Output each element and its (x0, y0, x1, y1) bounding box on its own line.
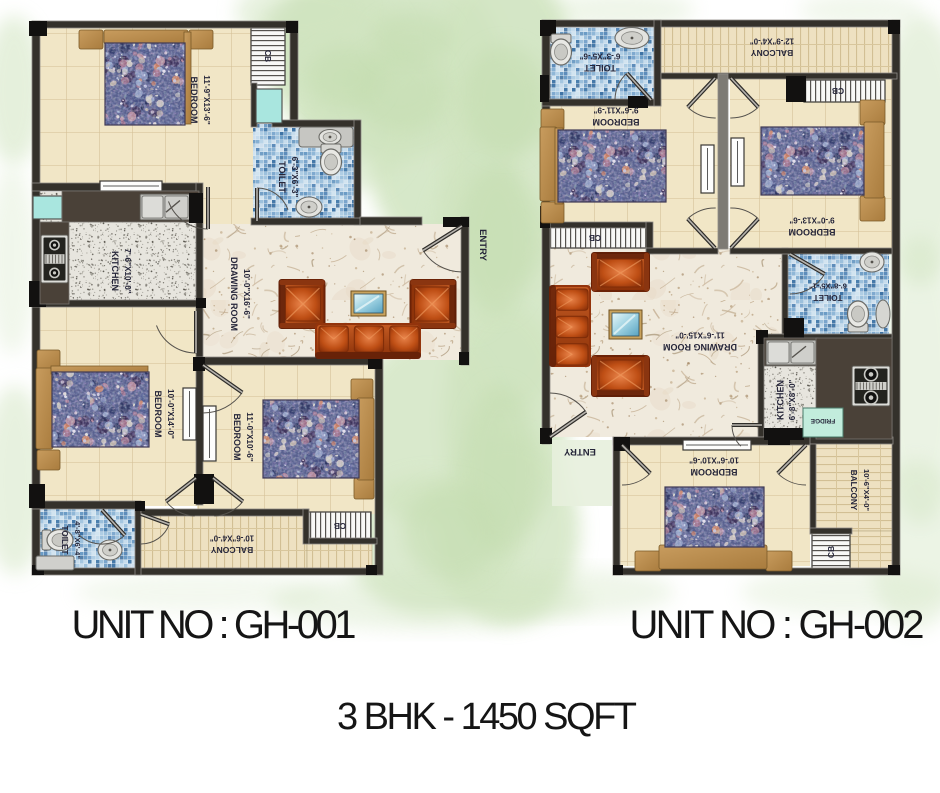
svg-text:BALCONY: BALCONY (750, 48, 793, 58)
svg-text:BEDROOM: BEDROOM (789, 227, 836, 237)
svg-text:CB: CB (832, 86, 844, 96)
svg-text:11'-9"X13'-6": 11'-9"X13'-6" (202, 75, 211, 125)
svg-text:BEDROOM: BEDROOM (189, 77, 199, 124)
svg-text:UNIT NO : GH-001: UNIT NO : GH-001 (72, 603, 357, 647)
svg-text:7'-6"X10'-0": 7'-6"X10'-0" (123, 248, 132, 293)
svg-text:3 BHK - 1450 SQFT: 3 BHK - 1450 SQFT (337, 696, 637, 738)
svg-text:10'-6"X4'-0": 10'-6"X4'-0" (862, 469, 871, 511)
svg-text:TOILET: TOILET (814, 293, 843, 302)
svg-text:DRAWING ROOM: DRAWING ROOM (229, 257, 239, 331)
svg-text:ENTRY: ENTRY (563, 446, 596, 457)
svg-text:FRIDGE: FRIDGE (810, 417, 835, 424)
svg-text:4'-8"X6'-4": 4'-8"X6'-4" (73, 521, 82, 559)
svg-text:9'-6"X11'-9": 9'-6"X11'-9" (593, 105, 638, 114)
svg-text:BEDROOM: BEDROOM (593, 117, 640, 127)
svg-text:6'-8"X8'-0": 6'-8"X8'-0" (788, 379, 797, 420)
svg-text:CB: CB (263, 50, 273, 62)
svg-text:6'-3"X5'-6": 6'-3"X5'-6" (579, 51, 620, 60)
svg-text:UNIT NO : GH-002: UNIT NO : GH-002 (630, 603, 925, 647)
svg-text:BALCONY: BALCONY (210, 545, 253, 555)
svg-text:DRAWING ROOM: DRAWING ROOM (663, 342, 737, 352)
svg-text:BEDROOM: BEDROOM (232, 414, 242, 461)
svg-text:10'-6"X10'-6": 10'-6"X10'-6" (689, 455, 739, 464)
svg-text:6'-3"X6'-3": 6'-3"X6'-3" (290, 157, 299, 198)
svg-text:KITCHEN: KITCHEN (775, 380, 785, 420)
svg-text:TOILET: TOILET (60, 526, 69, 555)
svg-text:BALCONY: BALCONY (849, 470, 858, 511)
svg-text:BEDROOM: BEDROOM (691, 467, 738, 477)
svg-text:TOILET: TOILET (584, 63, 616, 73)
svg-text:CB: CB (826, 546, 836, 558)
svg-text:10'-0"X14'-0": 10'-0"X14'-0" (166, 389, 175, 439)
svg-text:KITCHEN: KITCHEN (110, 251, 120, 291)
svg-text:CB: CB (589, 233, 601, 243)
svg-text:9'-0"X13'-6": 9'-0"X13'-6" (789, 215, 834, 224)
svg-text:CB: CB (334, 521, 346, 531)
svg-text:12'-9"X4'-0": 12'-9"X4'-0" (750, 36, 795, 45)
svg-text:6'-8"X5'-1": 6'-8"X5'-1" (809, 281, 847, 290)
svg-text:10'-0"X16'-6": 10'-0"X16'-6" (242, 269, 251, 319)
svg-text:TOILET: TOILET (277, 161, 287, 193)
svg-text:11'-0"X10'-6": 11'-0"X10'-6" (245, 412, 254, 462)
svg-text:11'-6"X15'-0": 11'-6"X15'-0" (675, 330, 725, 339)
svg-text:BEDROOM: BEDROOM (153, 391, 163, 438)
svg-text:10'-6"X4'-0": 10'-6"X4'-0" (210, 533, 255, 542)
svg-text:ENTRY: ENTRY (477, 229, 488, 262)
